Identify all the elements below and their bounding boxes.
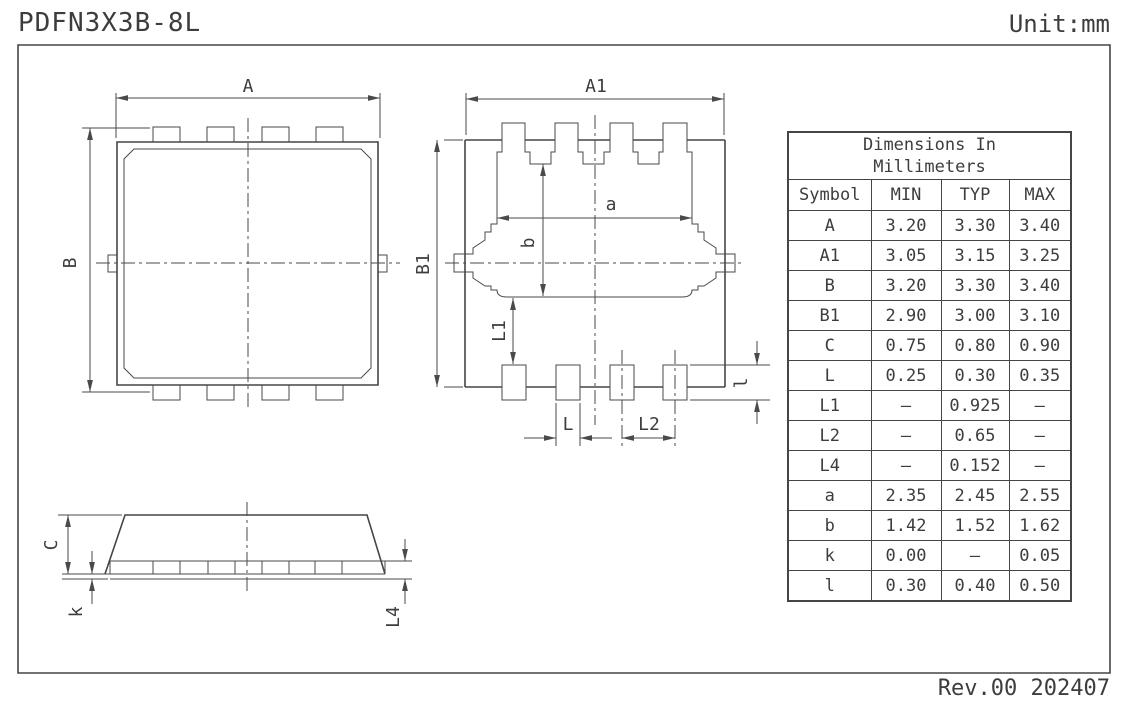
bottom-view: A1 B1 a b L1 L L2 — [413, 76, 770, 446]
table-row: A3.203.303.40 — [788, 211, 1071, 241]
table-row: L2–0.65– — [788, 421, 1071, 451]
table-cell-max: 3.25 — [1009, 241, 1071, 271]
table-title-line2: Millimeters — [873, 157, 986, 177]
table-cell-min: 2.90 — [871, 301, 941, 331]
table-cell-symbol: C — [788, 331, 871, 361]
table-cell-min: 0.75 — [871, 331, 941, 361]
table-cell-max: – — [1009, 391, 1071, 421]
dimension-L4-label: L4 — [383, 606, 404, 628]
table-cell-symbol: L — [788, 361, 871, 391]
dimension-l-label: l — [731, 378, 752, 389]
dimension-k-label: k — [66, 606, 87, 617]
table-cell-min: 3.20 — [871, 271, 941, 301]
table-cell-min: 0.00 — [871, 541, 941, 571]
dimension-C — [58, 515, 122, 579]
dimension-L2-label: L2 — [638, 414, 660, 435]
table-cell-typ: 0.152 — [941, 451, 1009, 481]
column-header-symbol: Symbol — [788, 180, 871, 211]
table-cell-max: – — [1009, 421, 1071, 451]
table-title-line1: Dimensions In — [863, 135, 996, 155]
table-row: b1.421.521.62 — [788, 511, 1071, 541]
table-cell-symbol: k — [788, 541, 871, 571]
table-row: l0.300.400.50 — [788, 571, 1071, 602]
table-cell-max: 0.05 — [1009, 541, 1071, 571]
dimension-A-label: A — [243, 76, 254, 97]
table-cell-typ: 3.30 — [941, 271, 1009, 301]
column-header-typ: TYP — [941, 180, 1009, 211]
table-cell-min: – — [871, 421, 941, 451]
column-header-min: MIN — [871, 180, 941, 211]
side-view-leadframe — [105, 561, 385, 579]
table-cell-symbol: L4 — [788, 451, 871, 481]
dimension-B — [82, 128, 150, 392]
table-cell-symbol: a — [788, 481, 871, 511]
table-cell-typ: 0.30 — [941, 361, 1009, 391]
dimension-L-label: L — [563, 414, 574, 435]
table-cell-min: 0.30 — [871, 571, 941, 602]
table-row: B12.903.003.10 — [788, 301, 1071, 331]
table-cell-symbol: A1 — [788, 241, 871, 271]
table-cell-typ: 0.65 — [941, 421, 1009, 451]
table-cell-symbol: b — [788, 511, 871, 541]
table-cell-symbol: L2 — [788, 421, 871, 451]
table-cell-symbol: B — [788, 271, 871, 301]
table-cell-min: 0.25 — [871, 361, 941, 391]
table-cell-symbol: A — [788, 211, 871, 241]
dimensions-table: Dimensions In Millimeters Symbol MIN TYP… — [787, 131, 1072, 602]
table-row: k0.00–0.05 — [788, 541, 1071, 571]
table-row: L4–0.152– — [788, 451, 1071, 481]
table-cell-max: 2.55 — [1009, 481, 1071, 511]
dimension-C-label: C — [41, 540, 62, 551]
table-row: C0.750.800.90 — [788, 331, 1071, 361]
table-cell-min: 1.42 — [871, 511, 941, 541]
dimension-B1-label: B1 — [413, 253, 434, 275]
table-cell-min: 3.20 — [871, 211, 941, 241]
table-cell-typ: 1.52 — [941, 511, 1009, 541]
table-body: A3.203.303.40A13.053.153.25B3.203.303.40… — [788, 211, 1071, 602]
table-cell-typ: 3.15 — [941, 241, 1009, 271]
table-title: Dimensions In Millimeters — [788, 132, 1071, 180]
table-cell-max: 1.62 — [1009, 511, 1071, 541]
table-row: L0.250.300.35 — [788, 361, 1071, 391]
dimension-L4 — [345, 539, 412, 604]
table-cell-symbol: B1 — [788, 301, 871, 331]
table-cell-typ: – — [941, 541, 1009, 571]
table-cell-typ: 3.00 — [941, 301, 1009, 331]
table-header-row: Symbol MIN TYP MAX — [788, 180, 1071, 211]
table-cell-typ: 2.45 — [941, 481, 1009, 511]
column-header-max: MAX — [1009, 180, 1071, 211]
table-row: a2.352.452.55 — [788, 481, 1071, 511]
table-cell-min: 2.35 — [871, 481, 941, 511]
table-cell-max: 0.50 — [1009, 571, 1071, 602]
dimension-B-label: B — [60, 258, 81, 269]
table-cell-min: 3.05 — [871, 241, 941, 271]
table-title-row: Dimensions In Millimeters — [788, 132, 1071, 180]
dimension-A1-label: A1 — [585, 76, 607, 97]
table-cell-typ: 0.80 — [941, 331, 1009, 361]
table-cell-typ: 3.30 — [941, 211, 1009, 241]
table-cell-min: – — [871, 451, 941, 481]
table-cell-max: 3.40 — [1009, 211, 1071, 241]
side-view: C k L4 — [41, 502, 412, 628]
dimension-l — [690, 341, 770, 424]
side-view-body — [105, 515, 385, 574]
dimension-b-label: b — [518, 238, 539, 249]
table-cell-typ: 0.40 — [941, 571, 1009, 602]
table-cell-typ: 0.925 — [941, 391, 1009, 421]
table-cell-symbol: l — [788, 571, 871, 602]
dimension-L1-label: L1 — [489, 320, 510, 342]
table-cell-max: 3.40 — [1009, 271, 1071, 301]
table-cell-max: – — [1009, 451, 1071, 481]
table-row: B3.203.303.40 — [788, 271, 1071, 301]
dimension-a-label: a — [606, 194, 617, 215]
table-cell-max: 0.35 — [1009, 361, 1071, 391]
table-cell-max: 3.10 — [1009, 301, 1071, 331]
table-cell-max: 0.90 — [1009, 331, 1071, 361]
top-view: A B — [60, 76, 400, 409]
table-cell-symbol: L1 — [788, 391, 871, 421]
table-row: L1–0.925– — [788, 391, 1071, 421]
table-cell-min: – — [871, 391, 941, 421]
drawing-sheet: PDFN3X3B-8L Unit:mm Rev.00 202407 — [0, 0, 1123, 714]
table-row: A13.053.153.25 — [788, 241, 1071, 271]
